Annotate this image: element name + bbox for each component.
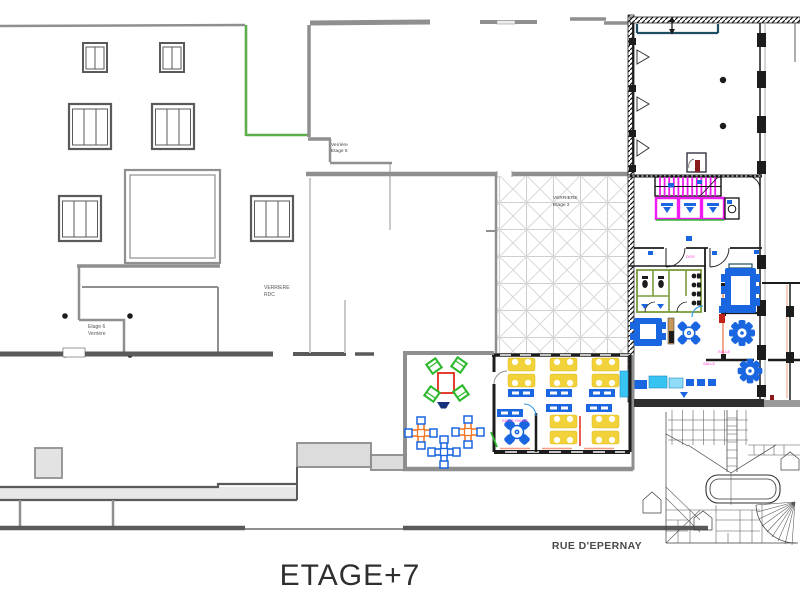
door-arc — [645, 302, 655, 312]
door-fixture — [687, 153, 706, 172]
annotation-etage6-verriere: Etage 6 — [88, 324, 105, 330]
room-tag: SALLE — [703, 361, 716, 366]
corridor-walls — [77, 266, 220, 352]
room-tag: SALLE — [718, 349, 731, 354]
green-chair — [453, 385, 468, 400]
casement-windows — [637, 50, 649, 156]
window — [152, 104, 194, 149]
wc-stall — [702, 198, 724, 219]
lower-walls — [0, 139, 392, 354]
top-wall-segments — [480, 19, 632, 24]
window — [69, 104, 111, 149]
wc-stall — [679, 198, 701, 219]
shower-fixture — [725, 198, 739, 219]
office-openspace: SALLE PAUSE — [491, 355, 630, 453]
annotation-verriere-etage5: Verrière — [331, 142, 348, 148]
lower-left-building — [0, 443, 404, 528]
floor-plan-page: Verrière Etage 5 VERRIERE RDC Etage 6 Ve… — [0, 0, 800, 600]
cabinet — [546, 404, 572, 412]
green-chair — [451, 357, 466, 372]
room-tag: SALLE PAUSE — [502, 418, 528, 423]
cabinet — [586, 404, 612, 412]
wall-band — [0, 487, 297, 500]
window — [160, 43, 184, 72]
door-arc — [666, 248, 685, 267]
floor-plan-canvas: Verrière Etage 5 VERRIERE RDC Etage 6 Ve… — [0, 0, 800, 600]
terrace-table-orange — [452, 416, 484, 448]
street-wall — [0, 528, 708, 529]
shaft-box — [35, 448, 62, 478]
door-arc — [494, 371, 507, 384]
floor-title: ETAGE+7 — [280, 559, 421, 592]
desk-clusters — [508, 358, 619, 444]
desk-cluster — [592, 358, 619, 387]
staircase — [655, 177, 721, 196]
svg-text:Etage 2: Etage 2 — [553, 202, 570, 208]
round-table — [670, 314, 708, 352]
cabinet — [497, 409, 523, 417]
svg-text:Etage 5: Etage 5 — [331, 148, 348, 154]
green-chair — [426, 358, 441, 373]
verriere-etage2: VERRIERE Etage 2 — [486, 176, 628, 353]
marker-triangle — [657, 304, 664, 309]
planter-icon — [437, 402, 450, 409]
office-cabinets — [497, 389, 615, 417]
street-label: RUE D'EPERNAY — [552, 540, 642, 552]
cabinet — [546, 389, 572, 397]
building-mass — [297, 443, 371, 467]
meeting-table-b2 — [721, 264, 760, 313]
skylight — [706, 475, 780, 503]
door-arc — [710, 248, 729, 267]
cabinet — [508, 389, 534, 397]
wc-stalls — [656, 198, 724, 220]
annotation-verriere-etage2: VERRIERE — [553, 195, 578, 201]
wc-stall — [656, 198, 678, 219]
column-dot — [720, 123, 726, 129]
window — [83, 43, 107, 72]
right-wing: SALLE SALLE DGS — [630, 254, 800, 400]
column-dot — [720, 77, 726, 83]
kitchenette-door — [668, 318, 674, 344]
marker — [686, 236, 692, 241]
facade-windows — [59, 43, 293, 241]
building-mass — [371, 455, 404, 470]
stair-wc-block — [628, 176, 762, 267]
storage-cabinets — [634, 376, 716, 389]
gear-table — [729, 320, 755, 346]
marker-triangle — [680, 392, 688, 398]
door-opening — [63, 348, 85, 357]
door-arc — [677, 302, 687, 312]
dormer — [781, 452, 799, 470]
desk-cluster — [592, 415, 619, 444]
gear-table — [738, 359, 763, 384]
desk-cluster — [508, 358, 535, 387]
wing-base-wall — [634, 399, 764, 407]
meeting-table-b1 — [630, 318, 666, 346]
marker — [770, 395, 774, 400]
cabinet — [589, 389, 615, 397]
dormer — [643, 492, 661, 513]
window — [251, 196, 293, 241]
terrace-dining-set — [424, 357, 468, 408]
door-arc — [747, 176, 760, 189]
inner-room — [125, 170, 220, 263]
room-tag: DGS — [686, 254, 695, 259]
terrace-table-orange — [405, 417, 437, 449]
door-arc — [524, 404, 536, 416]
green-shaft — [246, 25, 309, 137]
urinal-icons — [692, 274, 701, 306]
svg-text:RDC: RDC — [264, 292, 275, 298]
annotation-verriere-rdc: VERRIERE — [264, 285, 290, 291]
terrace-table-blue — [428, 436, 460, 468]
locker-stack — [719, 306, 725, 323]
cabinet — [620, 371, 628, 397]
desk-cluster — [550, 358, 577, 387]
window — [59, 196, 101, 241]
desk-cluster — [550, 415, 577, 444]
red-table — [438, 373, 454, 393]
svg-text:Verrière: Verrière — [88, 331, 106, 337]
roof-plan — [634, 395, 800, 545]
right-facade-wall — [757, 23, 766, 405]
